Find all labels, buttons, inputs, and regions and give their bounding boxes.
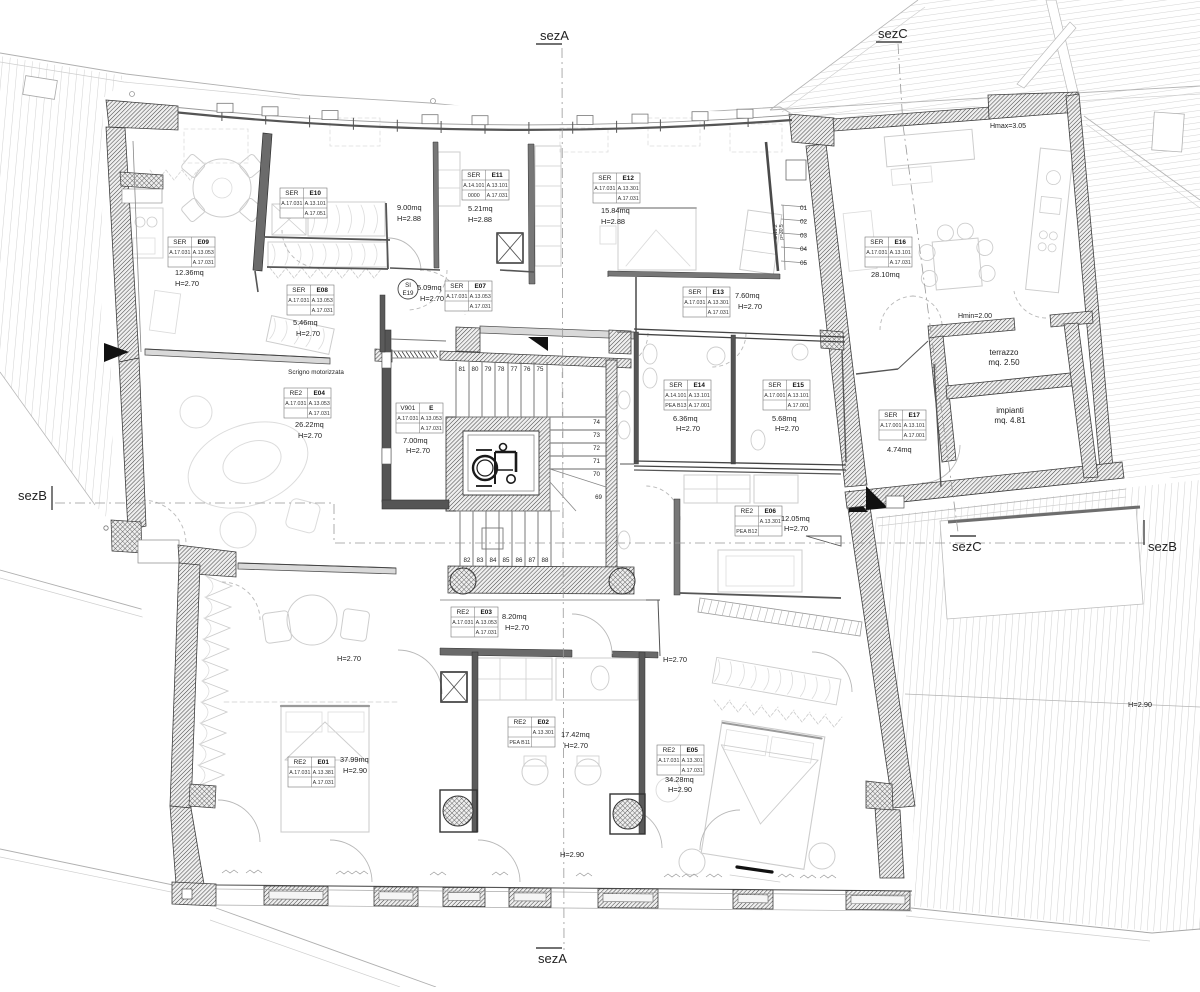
svg-text:79: 79	[485, 366, 492, 373]
svg-text:5.68mq: 5.68mq	[772, 414, 797, 423]
svg-text:H=2.88: H=2.88	[397, 214, 421, 223]
svg-text:26.22mq: 26.22mq	[295, 420, 324, 429]
svg-text:05: 05	[800, 260, 808, 267]
svg-text:H=2.90: H=2.90	[668, 785, 692, 794]
svg-text:H=2.70: H=2.70	[505, 623, 529, 632]
svg-text:A.13.053: A.13.053	[476, 620, 497, 626]
svg-text:E01: E01	[318, 759, 330, 766]
svg-text:7.60mq: 7.60mq	[735, 291, 760, 300]
svg-text:77: 77	[511, 366, 518, 373]
svg-text:A.13.053: A.13.053	[193, 250, 214, 256]
svg-text:A.17.051: A.17.051	[305, 211, 326, 217]
svg-text:E: E	[429, 405, 434, 412]
svg-text:A.17.031: A.17.031	[684, 300, 705, 306]
svg-text:04: 04	[800, 246, 808, 253]
svg-text:A.17.031: A.17.031	[312, 308, 333, 314]
svg-text:85: 85	[503, 557, 510, 564]
svg-text:12.36mq: 12.36mq	[175, 268, 204, 277]
svg-text:A.17.031: A.17.031	[470, 304, 491, 310]
svg-text:mq. 4.81: mq. 4.81	[994, 416, 1026, 425]
svg-text:0000: 0000	[468, 193, 480, 199]
svg-text:A.17.031: A.17.031	[421, 426, 442, 432]
svg-text:H=2.70: H=2.70	[676, 424, 700, 433]
svg-text:A.17.031: A.17.031	[594, 186, 615, 192]
svg-text:E07: E07	[475, 283, 487, 290]
svg-text:A.17.031: A.17.031	[397, 416, 418, 422]
svg-text:83: 83	[477, 557, 484, 564]
svg-text:H=2.90: H=2.90	[560, 850, 584, 859]
svg-text:E08: E08	[317, 287, 329, 294]
svg-text:H=2.70: H=2.70	[406, 446, 430, 455]
svg-text:H=2.90: H=2.90	[1128, 700, 1152, 709]
svg-text:A.17.031: A.17.031	[285, 401, 306, 407]
svg-text:81: 81	[459, 366, 466, 373]
svg-text:A.17.031: A.17.031	[890, 260, 911, 266]
svg-text:A.17.001: A.17.001	[764, 393, 785, 399]
svg-text:SER: SER	[285, 190, 299, 197]
svg-text:A.17.031: A.17.031	[682, 768, 703, 774]
svg-text:A.17.031: A.17.031	[452, 620, 473, 626]
svg-text:8.20mq: 8.20mq	[502, 612, 527, 621]
svg-text:70: 70	[593, 471, 600, 478]
svg-text:A.17.031: A.17.031	[476, 630, 497, 636]
svg-text:5.46mq: 5.46mq	[293, 318, 318, 327]
svg-text:A.13.053: A.13.053	[309, 401, 330, 407]
svg-text:H=2.70: H=2.70	[298, 431, 322, 440]
svg-text:A.13.101: A.13.101	[890, 250, 911, 256]
svg-text:37.99mq: 37.99mq	[340, 755, 369, 764]
svg-text:82: 82	[464, 557, 471, 564]
svg-text:SER: SER	[688, 289, 702, 296]
svg-text:H=2.70: H=2.70	[784, 524, 808, 533]
svg-text:A.13.301: A.13.301	[533, 730, 554, 736]
svg-text:76: 76	[524, 366, 531, 373]
svg-text:E02: E02	[538, 719, 550, 726]
svg-text:A.17.031: A.17.031	[288, 298, 309, 304]
svg-text:H=2.90: H=2.90	[343, 766, 367, 775]
svg-text:RE2: RE2	[741, 508, 754, 515]
svg-text:69: 69	[595, 494, 602, 501]
svg-text:V901: V901	[400, 405, 415, 412]
svg-text:E15: E15	[793, 382, 805, 389]
svg-text:15.84mq: 15.84mq	[601, 206, 630, 215]
svg-text:A.17.031: A.17.031	[446, 294, 467, 300]
svg-text:A.17.001: A.17.001	[880, 423, 901, 429]
svg-text:28.10mq: 28.10mq	[871, 270, 900, 279]
svg-text:A.17.031: A.17.031	[309, 411, 330, 417]
svg-text:72: 72	[593, 445, 600, 452]
svg-text:A.17.031: A.17.031	[487, 193, 508, 199]
svg-text:A.17.031: A.17.031	[289, 770, 310, 776]
svg-text:PEA B12: PEA B12	[736, 529, 757, 535]
svg-text:E06: E06	[765, 508, 777, 515]
svg-text:78: 78	[498, 366, 505, 373]
svg-text:A.13.301: A.13.301	[708, 300, 729, 306]
svg-text:A.17.031: A.17.031	[281, 201, 302, 207]
svg-text:mq. 2.50: mq. 2.50	[988, 358, 1020, 367]
svg-text:E04: E04	[314, 390, 326, 397]
svg-text:A.14.101: A.14.101	[665, 393, 686, 399]
svg-text:A.13.301: A.13.301	[760, 519, 781, 525]
svg-text:12.05mq: 12.05mq	[781, 514, 810, 523]
svg-text:A.14.101: A.14.101	[463, 183, 484, 189]
svg-text:sezA: sezA	[540, 28, 569, 43]
svg-text:sezB: sezB	[18, 488, 47, 503]
svg-text:4.74mq: 4.74mq	[887, 445, 912, 454]
svg-text:A.13.301: A.13.301	[682, 758, 703, 764]
svg-text:73: 73	[593, 432, 600, 439]
svg-text:sezC: sezC	[952, 539, 982, 554]
svg-text:PEA B11: PEA B11	[509, 740, 530, 746]
svg-text:7.00mq: 7.00mq	[403, 436, 428, 445]
svg-text:sezA: sezA	[538, 951, 567, 966]
svg-text:SER: SER	[173, 239, 187, 246]
svg-text:SER: SER	[450, 283, 464, 290]
svg-text:03: 03	[800, 232, 808, 239]
svg-text:PEA B13: PEA B13	[665, 403, 686, 409]
svg-text:80: 80	[472, 366, 479, 373]
svg-text:H=2.70: H=2.70	[296, 329, 320, 338]
svg-text:A.17.031: A.17.031	[618, 196, 639, 202]
svg-text:E12: E12	[623, 175, 635, 182]
svg-text:RE2: RE2	[294, 759, 307, 766]
svg-text:H=2.88: H=2.88	[601, 217, 625, 226]
svg-text:01: 01	[800, 205, 808, 212]
svg-text:SER: SER	[598, 175, 612, 182]
svg-text:SER: SER	[467, 172, 481, 179]
svg-text:E16: E16	[895, 239, 907, 246]
svg-text:E11: E11	[492, 172, 503, 179]
svg-text:H=2.70: H=2.70	[738, 302, 762, 311]
svg-text:A.17.031: A.17.031	[193, 260, 214, 266]
svg-text:A.17.031: A.17.031	[658, 758, 679, 764]
svg-text:H=2.70: H=2.70	[175, 279, 199, 288]
svg-text:6.36mq: 6.36mq	[673, 414, 698, 423]
svg-text:impianti: impianti	[996, 406, 1024, 415]
svg-text:p=30.5: p=30.5	[779, 224, 785, 240]
svg-text:9.00mq: 9.00mq	[397, 203, 422, 212]
svg-text:74: 74	[593, 419, 600, 426]
svg-text:87: 87	[529, 557, 536, 564]
svg-text:SER: SER	[884, 412, 898, 419]
svg-text:H=2.70: H=2.70	[337, 654, 361, 663]
svg-text:A.17.031: A.17.031	[708, 310, 729, 316]
svg-text:71: 71	[593, 458, 600, 465]
svg-text:Scrigno motorizzata: Scrigno motorizzata	[288, 369, 344, 376]
svg-text:A.17.031: A.17.031	[866, 250, 887, 256]
svg-text:02: 02	[800, 219, 808, 226]
svg-text:H=2.70: H=2.70	[775, 424, 799, 433]
svg-text:RE2: RE2	[457, 609, 470, 616]
svg-text:SER: SER	[669, 382, 683, 389]
svg-text:A.13.101: A.13.101	[788, 393, 809, 399]
svg-text:86: 86	[516, 557, 523, 564]
svg-text:5.09mq: 5.09mq	[417, 283, 442, 292]
svg-text:5.21mq: 5.21mq	[468, 204, 493, 213]
svg-text:84: 84	[490, 557, 497, 564]
svg-text:17.42mq: 17.42mq	[561, 730, 590, 739]
svg-text:34.28mq: 34.28mq	[665, 775, 694, 784]
svg-text:A.17.031: A.17.031	[313, 780, 334, 786]
svg-text:75: 75	[537, 366, 544, 373]
svg-text:A.13.101: A.13.101	[305, 201, 326, 207]
svg-text:E14: E14	[694, 382, 706, 389]
svg-text:SER: SER	[292, 287, 306, 294]
svg-text:sezC: sezC	[878, 26, 908, 41]
svg-text:sezB: sezB	[1148, 539, 1177, 554]
svg-text:A.13.053: A.13.053	[470, 294, 491, 300]
svg-text:Hmin=2.00: Hmin=2.00	[958, 313, 992, 320]
svg-text:A.13.101: A.13.101	[487, 183, 508, 189]
svg-text:E09: E09	[198, 239, 210, 246]
svg-text:A.13.381: A.13.381	[313, 770, 334, 776]
svg-text:A.17.031: A.17.031	[169, 250, 190, 256]
svg-text:A.17.001: A.17.001	[689, 403, 710, 409]
svg-text:H=2.70: H=2.70	[420, 294, 444, 303]
svg-text:A.13.053: A.13.053	[312, 298, 333, 304]
svg-text:A.13.101: A.13.101	[904, 423, 925, 429]
svg-text:SER: SER	[768, 382, 782, 389]
svg-text:E05: E05	[687, 747, 699, 754]
svg-text:A.13.101: A.13.101	[689, 393, 710, 399]
svg-text:A.17.001: A.17.001	[788, 403, 809, 409]
svg-text:H=2.88: H=2.88	[468, 215, 492, 224]
svg-text:A.13.301: A.13.301	[618, 186, 639, 192]
svg-text:A.13.053: A.13.053	[421, 416, 442, 422]
svg-text:A.17.001: A.17.001	[904, 433, 925, 439]
svg-text:RE2: RE2	[290, 390, 303, 397]
svg-text:RE2: RE2	[514, 719, 527, 726]
svg-text:RE2: RE2	[663, 747, 676, 754]
svg-text:H=2.70: H=2.70	[564, 741, 588, 750]
svg-text:terrazzo: terrazzo	[990, 348, 1019, 357]
svg-text:Hmax=3.05: Hmax=3.05	[990, 123, 1026, 130]
svg-text:SER: SER	[870, 239, 884, 246]
svg-text:E10: E10	[310, 190, 322, 197]
svg-text:88: 88	[542, 557, 549, 564]
svg-text:SI: SI	[405, 282, 411, 289]
svg-text:E13: E13	[713, 289, 725, 296]
svg-text:E17: E17	[909, 412, 921, 419]
svg-text:E03: E03	[481, 609, 493, 616]
svg-text:H=2.70: H=2.70	[663, 655, 687, 664]
svg-text:E19: E19	[402, 290, 414, 297]
